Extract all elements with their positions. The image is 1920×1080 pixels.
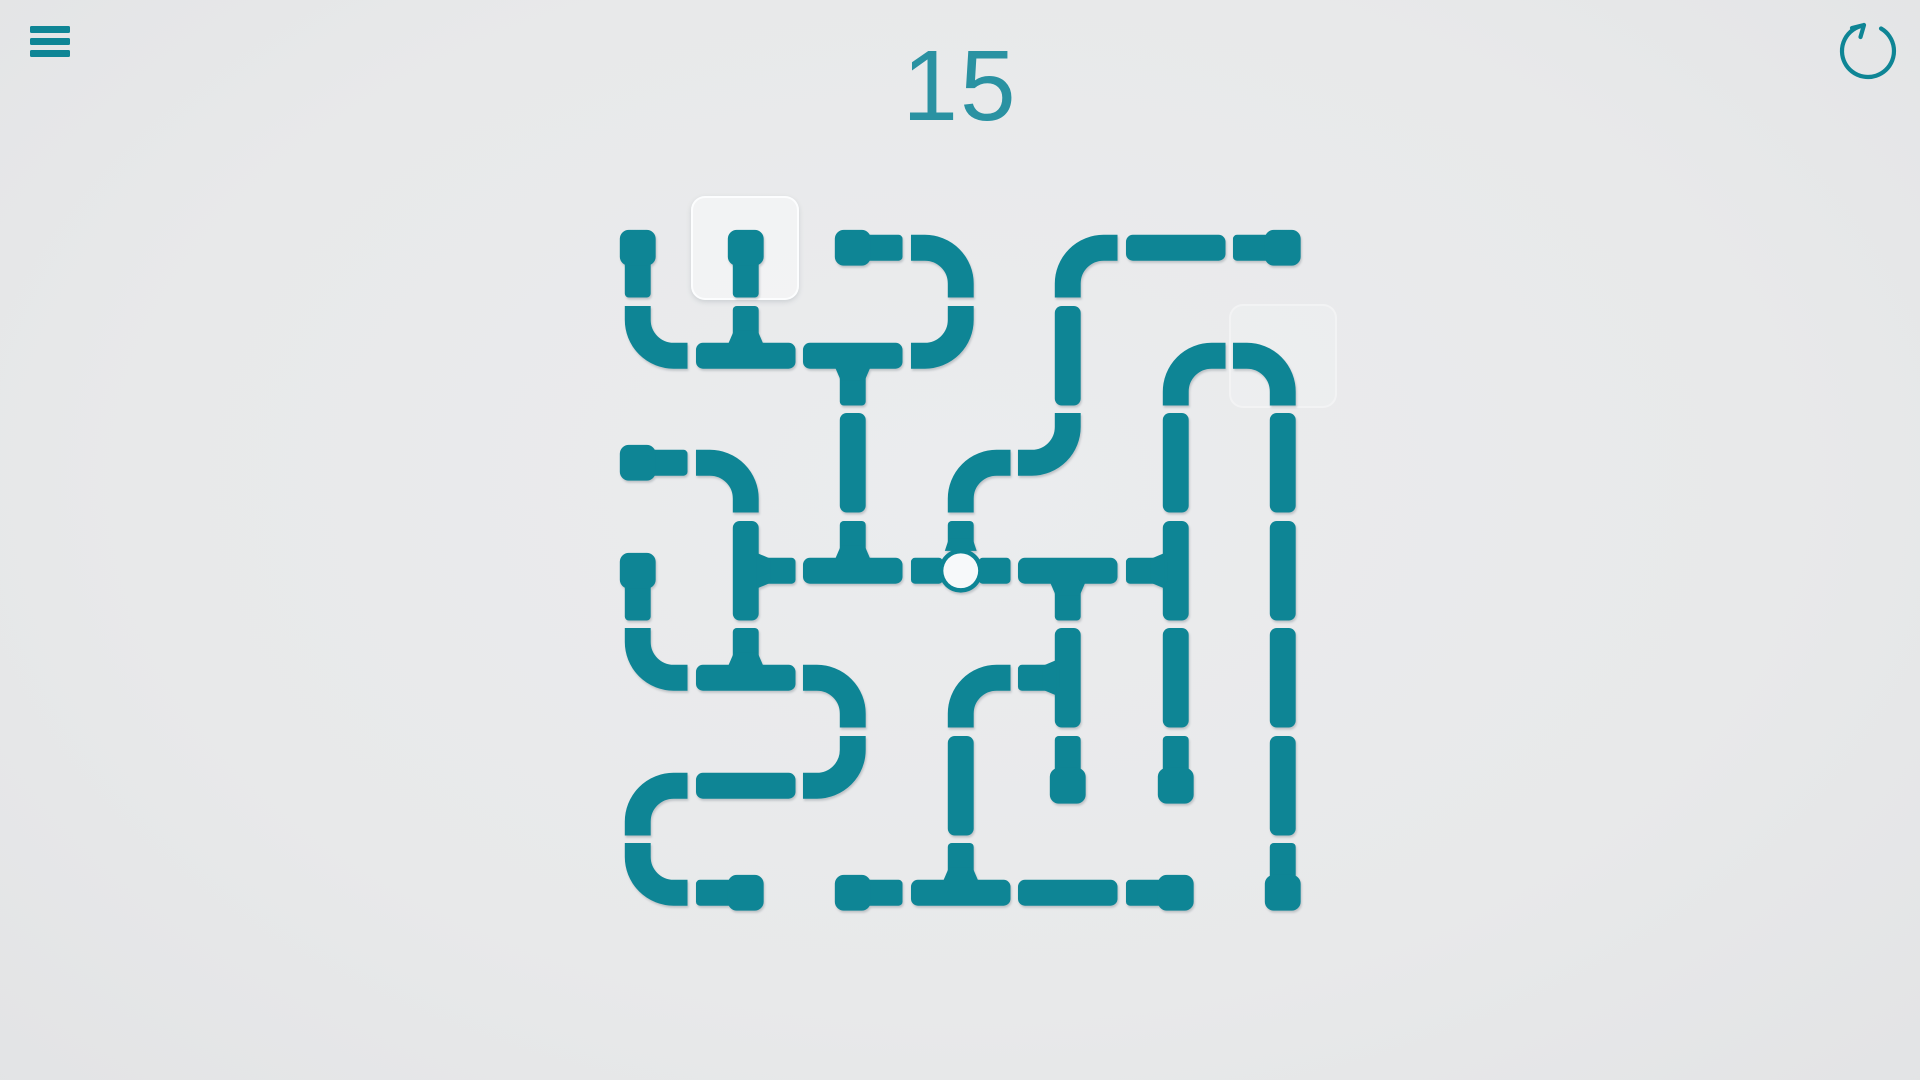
pipe-piece-tee-nwe[interactable] (907, 839, 1015, 947)
pipe-piece-elbow-nw[interactable] (1014, 409, 1122, 517)
restart-button[interactable] (1838, 20, 1898, 80)
pipe-piece-end-w[interactable] (1122, 839, 1230, 947)
pipe-piece-elbow-se[interactable] (584, 732, 692, 840)
pipe-piece-end-e[interactable] (799, 839, 907, 947)
pipe-piece-tee-nwe[interactable] (799, 517, 907, 625)
pipe-grid (584, 194, 1337, 947)
pipe-piece-end-w[interactable] (1229, 194, 1337, 302)
pipe-piece-elbow-se[interactable] (907, 624, 1015, 732)
pipe-piece-str-v[interactable] (907, 732, 1015, 840)
restart-icon (1838, 20, 1898, 80)
pipe-piece-tee-nsw[interactable] (1122, 517, 1230, 625)
pipe-piece-str-h[interactable] (692, 732, 800, 840)
pipe-piece-str-v[interactable] (1122, 409, 1230, 517)
pipe-piece-end-s[interactable] (692, 194, 800, 302)
level-number: 15 (0, 36, 1920, 136)
pipe-piece-str-v[interactable] (1229, 732, 1337, 840)
pipe-piece-tee-swe[interactable] (1014, 517, 1122, 625)
pipe-piece-end-n[interactable] (1014, 732, 1122, 840)
pipe-piece-end-s[interactable] (584, 194, 692, 302)
pipe-piece-end-n[interactable] (1122, 732, 1230, 840)
pipe-piece-str-v[interactable] (799, 409, 907, 517)
pipe-piece-end-e[interactable] (584, 409, 692, 517)
pipe-piece-tee-nwe[interactable] (692, 624, 800, 732)
pipe-piece-elbow-ws[interactable] (1229, 302, 1337, 410)
pipe-piece-str-v[interactable] (1229, 517, 1337, 625)
pipe-piece-elbow-ws[interactable] (692, 409, 800, 517)
pipe-piece-tee-nsw[interactable] (1014, 624, 1122, 732)
pipe-piece-str-v[interactable] (1014, 302, 1122, 410)
pipe-piece-str-v[interactable] (1229, 409, 1337, 517)
pipe-piece-end-n[interactable] (1229, 839, 1337, 947)
pipe-piece-end-s[interactable] (584, 517, 692, 625)
pipe-piece-end-e[interactable] (799, 194, 907, 302)
pipe-piece-str-v[interactable] (1122, 624, 1230, 732)
pipe-piece-elbow-se[interactable] (907, 409, 1015, 517)
pipe-piece-tee-nwe[interactable] (692, 302, 800, 410)
pipe-piece-elbow-ne[interactable] (584, 624, 692, 732)
pipe-piece-elbow-ws[interactable] (907, 194, 1015, 302)
pipe-piece-str-v[interactable] (1229, 624, 1337, 732)
pipe-piece-end-w[interactable] (692, 839, 800, 947)
pipe-piece-elbow-se[interactable] (1014, 194, 1122, 302)
pipe-piece-str-h[interactable] (1122, 194, 1230, 302)
pipe-piece-tee-nse[interactable] (692, 517, 800, 625)
pipe-piece-elbow-ne[interactable] (584, 839, 692, 947)
pipe-piece-tee-swe[interactable] (799, 302, 907, 410)
pipe-piece-elbow-nw[interactable] (799, 732, 907, 840)
pipe-piece-str-h[interactable] (1014, 839, 1122, 947)
pipe-piece-elbow-nw[interactable] (907, 302, 1015, 410)
pipe-piece-elbow-ne[interactable] (584, 302, 692, 410)
pipe-piece-elbow-se[interactable] (1122, 302, 1230, 410)
pipe-piece-elbow-ws[interactable] (799, 624, 907, 732)
pipe-piece-valve-nwe[interactable] (907, 517, 1015, 625)
